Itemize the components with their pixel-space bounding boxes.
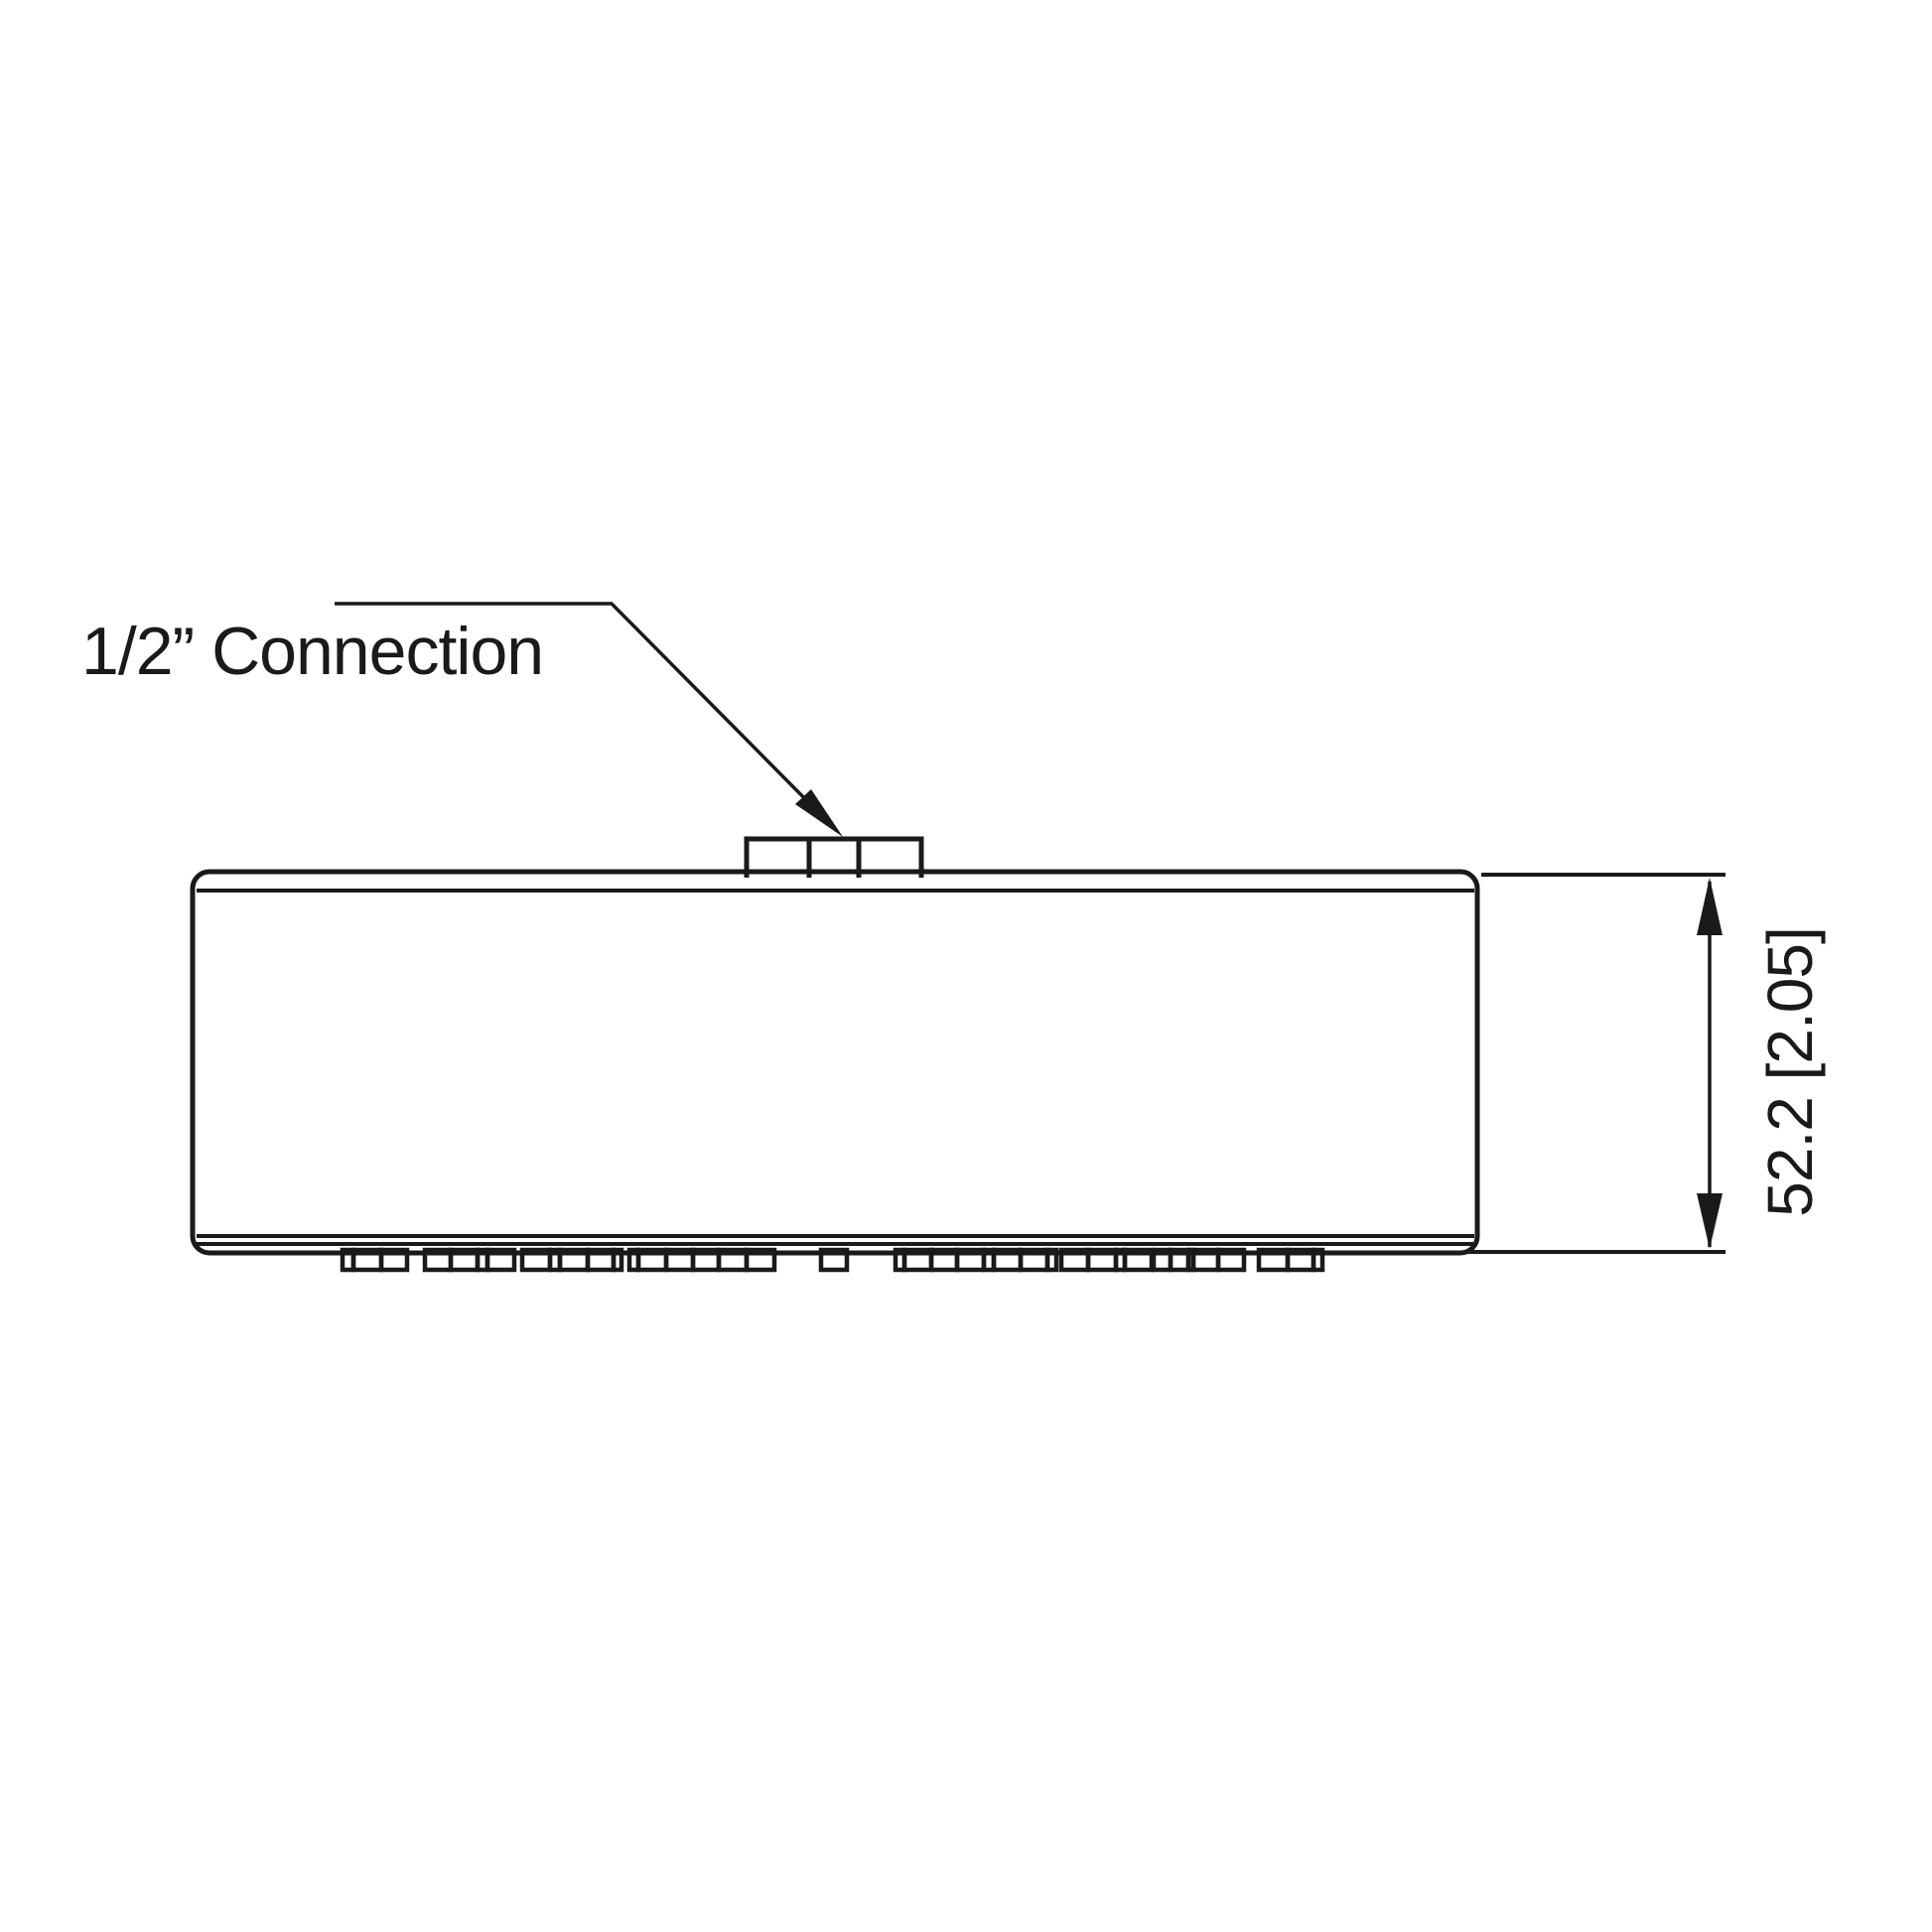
height-dimension — [1465, 875, 1725, 1252]
dimension-arrow-up-icon — [1697, 878, 1723, 935]
dimension-arrow-down-icon — [1697, 1193, 1723, 1249]
shower-head-outline — [193, 872, 1477, 1253]
drawing-labels: 1/2” Connection 52.2 [2.05] — [81, 614, 1826, 1217]
shower-head-technical-drawing: 1/2” Connection 52.2 [2.05] — [0, 0, 1932, 1932]
height-dimension-label: 52.2 [2.05] — [1754, 927, 1826, 1216]
shower-head-body — [193, 872, 1477, 1253]
drawing-canvas: 1/2” Connection 52.2 [2.05] — [0, 0, 1932, 1932]
connection-label: 1/2” Connection — [81, 614, 543, 689]
